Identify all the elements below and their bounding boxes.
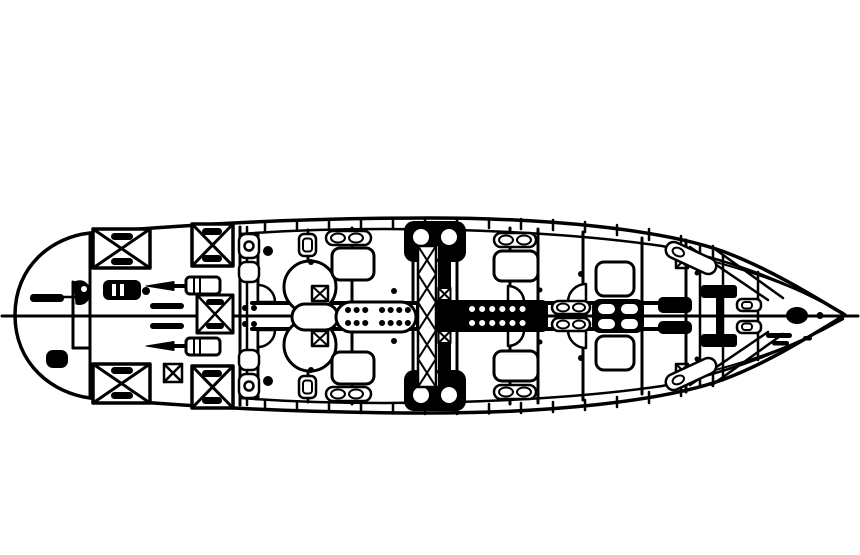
galley-step-slot-4 [621, 319, 638, 329]
hatch-handle-2 [111, 258, 133, 265]
knob-dot-1 [308, 259, 314, 265]
davit-head-hole [81, 286, 87, 292]
bow-cleat-dash-1 [766, 333, 792, 338]
tiller-spear [146, 342, 174, 351]
hatch-handle-4 [202, 255, 222, 262]
skylight-port-2 [441, 229, 457, 245]
lazarette-handle-top [206, 299, 224, 305]
berth-1 [332, 352, 374, 384]
hatch-handle-1 [111, 392, 133, 399]
stern-cleat-dash [30, 294, 64, 302]
hatch-handle-4 [202, 370, 222, 377]
berth-1 [332, 248, 374, 280]
corridor-capsule-steps [336, 302, 416, 332]
sole-dot-1 [242, 305, 248, 311]
skylight-port-1 [413, 229, 429, 245]
boat-deck-plan-figure [0, 0, 860, 555]
locker-box-1 [239, 234, 259, 258]
hatch-handle-3 [202, 397, 222, 404]
anchor-windlass-blob [786, 307, 808, 324]
knob-dot-1 [308, 367, 314, 373]
berth-3 [596, 336, 634, 370]
door-swing-fan-1 [258, 285, 275, 302]
knob-dot-3 [578, 355, 584, 361]
berth-pillow-shelf-2 [494, 385, 536, 399]
hatch-handle-3 [202, 228, 222, 235]
locker-box-1 [239, 374, 259, 398]
vberth-capsule [663, 239, 719, 276]
corridor-capsule-empty [292, 304, 338, 330]
hatch-handle-2 [111, 367, 133, 374]
sole-dot-4 [251, 321, 257, 327]
cockpit-cleat-dash [150, 323, 184, 329]
hatch-handle-1 [111, 233, 133, 240]
galley-step-unit [592, 299, 644, 333]
knob-dot-3 [578, 271, 584, 277]
windlass-body [701, 285, 737, 298]
stern-fender-blob [46, 350, 68, 368]
galley-step-slot-2 [621, 304, 638, 314]
bow-cleat-dash-3 [803, 336, 812, 341]
door-swing-fan-1 [258, 330, 275, 347]
tiller-barrel [186, 338, 220, 355]
locker-box-2 [239, 262, 259, 282]
winch-knob [142, 287, 150, 295]
berth-2 [494, 351, 538, 381]
windlass-body [701, 334, 737, 347]
samson-post [716, 298, 724, 334]
galley-comma-mark [263, 376, 273, 386]
door-swing-fan-3 [568, 330, 586, 348]
berth-3 [596, 262, 634, 296]
berth-2 [494, 251, 538, 281]
galley-step-slot-3 [598, 319, 615, 329]
galley-step-slot-1 [598, 304, 615, 314]
cockpit-cleat-dash [150, 303, 184, 309]
door-swing-fan-2 [508, 330, 524, 346]
knob-dot-5 [538, 340, 543, 345]
mast-column [438, 246, 451, 387]
knob-dot-5 [538, 288, 543, 293]
sole-dot-3 [242, 321, 248, 327]
winch-slit-2 [120, 284, 124, 296]
door-leaf [299, 376, 316, 398]
knob-dot-2 [391, 338, 397, 344]
bow-cleat-dash-2 [772, 341, 789, 346]
door-swing-fan-2 [508, 286, 524, 302]
davit-head [74, 281, 90, 305]
page [0, 0, 860, 555]
galley-comma-mark [263, 246, 273, 256]
berth-pillow-shelf-2 [494, 233, 536, 247]
winch-slit-1 [112, 284, 116, 296]
tiller-spear [146, 282, 174, 291]
vberth-capsule [663, 355, 719, 392]
skylight-port-1 [413, 387, 429, 403]
galley-block-lower [658, 321, 692, 334]
galley-block-upper [658, 297, 692, 313]
door-leaf [299, 234, 316, 256]
forestay-fitting-dot [817, 312, 824, 319]
door-swing-fan-3 [568, 284, 586, 302]
lazarette-handle-bottom [206, 323, 224, 329]
knob-dot-2 [391, 288, 397, 294]
skylight-port-2 [441, 387, 457, 403]
tiller-barrel [186, 277, 220, 294]
sole-dot-2 [251, 305, 257, 311]
locker-box-2 [239, 350, 259, 370]
